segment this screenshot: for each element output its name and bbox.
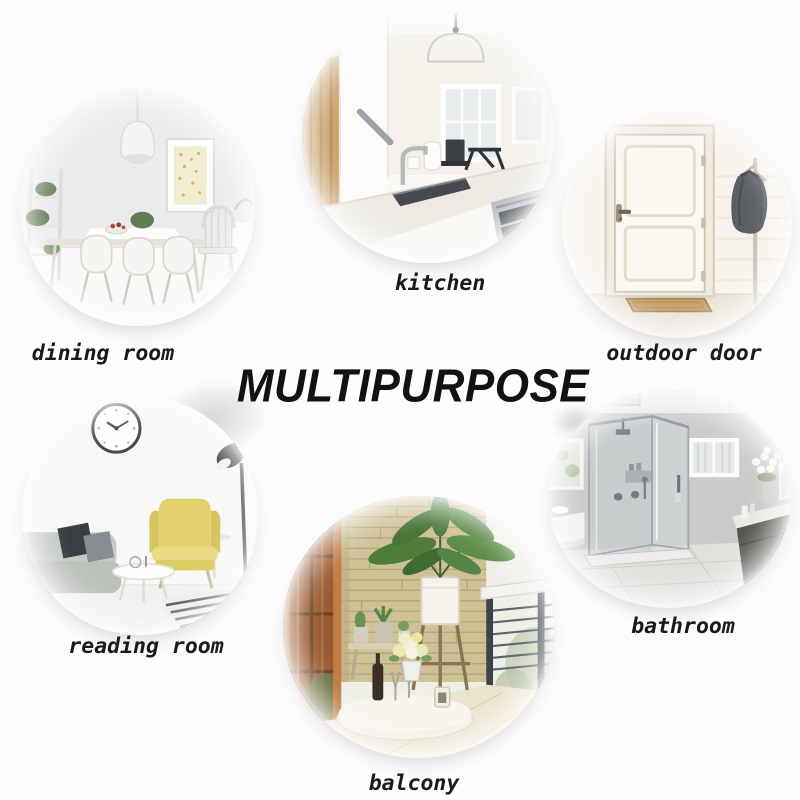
dining-room-photo (20, 88, 255, 326)
room-label-bathroom: bathroom (631, 614, 735, 639)
room-label-dining: dining room (32, 341, 174, 366)
kitchen-photo (302, 11, 554, 263)
room-label-outdoor-door: outdoor door (606, 341, 761, 366)
balcony-photo (283, 496, 554, 758)
room-label-reading-room: reading room (68, 634, 223, 659)
room-label-balcony: balcony (369, 771, 460, 796)
reading-room-photo (22, 396, 258, 635)
bathroom-illustration (548, 390, 790, 608)
reading-room-illustration (22, 396, 258, 635)
product-collage: dining room (0, 0, 800, 800)
balcony-illustration (283, 496, 554, 758)
room-label-kitchen: kitchen (395, 271, 486, 296)
bathroom-photo (548, 390, 790, 608)
dining-room-illustration (20, 88, 255, 326)
outdoor-door-illustration (562, 107, 792, 338)
outdoor-door-photo (562, 107, 792, 338)
kitchen-illustration (302, 11, 554, 263)
page-title: MULTIPURPOSE (237, 360, 589, 413)
